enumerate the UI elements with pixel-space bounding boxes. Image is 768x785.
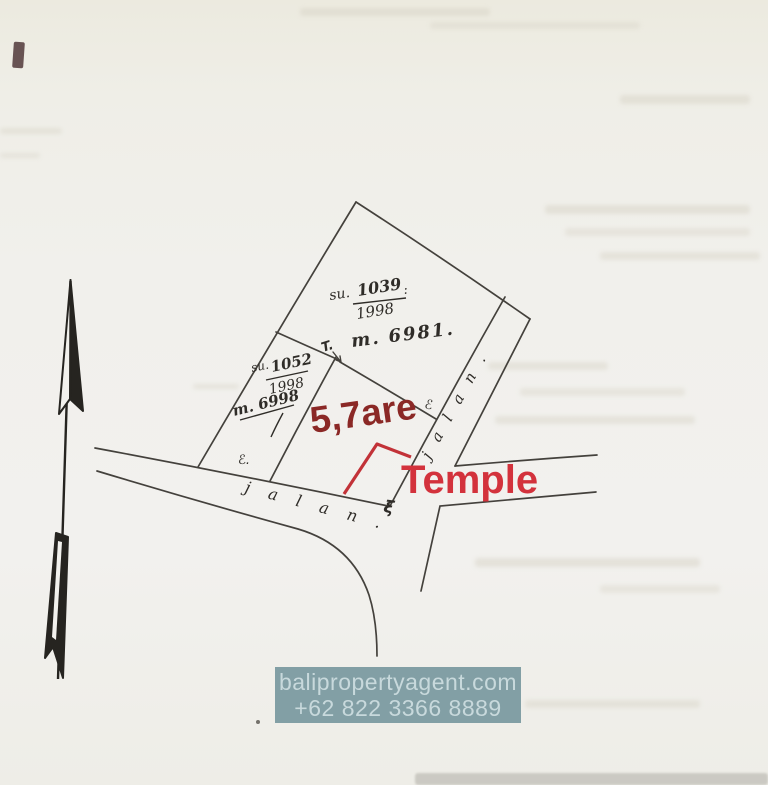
watermark-phone: +62 822 3366 8889: [294, 695, 501, 721]
parcel-left-su: su.: [250, 358, 270, 375]
watermark-box: balipropertyagent.com +62 822 3366 8889: [275, 667, 521, 723]
temple-label: Temple: [401, 458, 538, 502]
parcel-top-numerator: 1039: [356, 274, 403, 300]
parcel-left-meters: m. 6998: [231, 386, 302, 420]
corner-mark-west: ℰ.: [238, 453, 250, 468]
parcel-top-colon: :: [402, 282, 409, 298]
parcel-top-meters: m. 6981.: [350, 318, 456, 352]
bottom-road-lower-line: [97, 471, 377, 656]
parcel-left-annotation: su. 1052 1998 m. 6998: [231, 350, 314, 437]
area-label: 5,7are: [307, 385, 419, 440]
north-arrow-icon: [45, 280, 83, 679]
parcel-left-numerator: 1052: [269, 350, 314, 376]
road-label-bottom: j a l a n .: [240, 477, 390, 534]
parcel-top-annotation: su. 1039 : 1998 m. 6981.: [328, 274, 456, 352]
watermark-site: balipropertyagent.com: [279, 669, 517, 695]
scanned-survey-page: su. 1039 : 1998 m. 6981. su. 1052 1998 m…: [0, 0, 768, 785]
corner-mark-east: ℰ: [423, 397, 434, 413]
parcel-top-su: su.: [328, 285, 351, 304]
southeast-block-line: [421, 492, 596, 591]
